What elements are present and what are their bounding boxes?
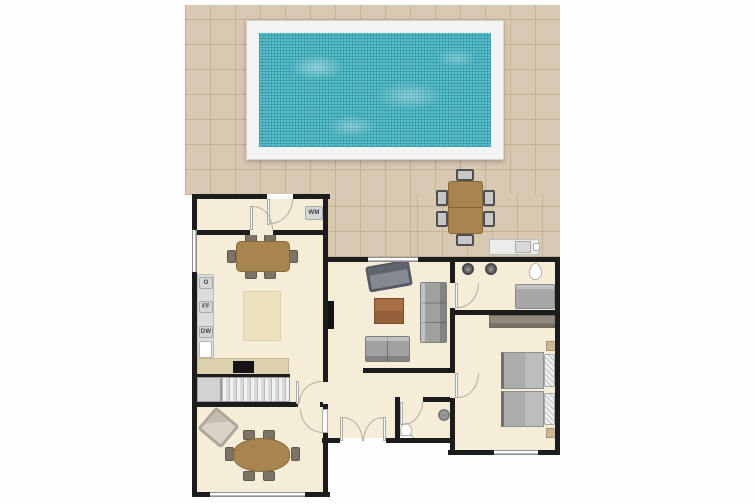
window [210,492,305,497]
fireplace [327,301,334,329]
wall [323,194,328,497]
patio-dining-table [448,181,483,234]
bed-duvet [501,391,544,427]
patio-chair [456,234,474,246]
patio-chair [456,169,474,181]
dining-chair [227,250,236,263]
oven-text: O [204,280,209,286]
swimming-pool [258,32,492,148]
bed-pillow [544,393,555,425]
wardrobe [489,315,556,328]
coffee-table [374,298,404,324]
wc-basin [438,409,450,421]
wall [363,368,452,373]
wall [555,257,560,455]
french-door-leaf [383,417,386,441]
staircase-winder [197,377,221,402]
washing-machine-label: WM [305,206,323,220]
shower-tray [515,284,555,309]
floor-plan-canvas: WM O FF DW [0,0,755,504]
wall [450,310,560,315]
sofa-right [420,282,447,343]
sofa-bottom [365,336,410,362]
outdoor-grill [489,239,539,255]
kitchen-dining-table [236,241,290,272]
window [494,450,538,455]
patio-chair [436,211,448,227]
toilet [529,263,542,280]
oven-label: O [199,277,213,289]
wall [448,257,560,262]
dishwasher-text: DW [201,329,211,335]
dining-chair [289,250,298,263]
grill-sink [533,243,540,251]
washing-machine-text: WM [308,210,319,216]
window [192,230,197,272]
stair-edge [197,374,290,377]
dining-chair [263,471,275,481]
kitchen-rug [243,291,281,341]
oval-dining-table [233,438,290,472]
wall [192,194,330,199]
door-opening [250,230,273,235]
dining-chair [291,447,300,461]
patio-chair [483,190,495,206]
fridge-freezer-label: FF [199,301,213,313]
window [368,257,418,262]
kitchen-sink [199,341,212,358]
wash-basin [485,263,497,275]
wash-basin [462,263,474,275]
dining-chair [243,471,255,481]
bed-pillow [544,354,555,387]
patio-chair [483,211,495,227]
grill-burner [515,241,531,253]
cooktop [233,361,254,373]
door-opening [323,382,328,404]
dishwasher-label: DW [199,326,213,338]
bed-duvet [501,352,544,389]
fridge-freezer-text: FF [202,304,210,310]
patio-chair [436,190,448,206]
staircase [221,377,290,402]
